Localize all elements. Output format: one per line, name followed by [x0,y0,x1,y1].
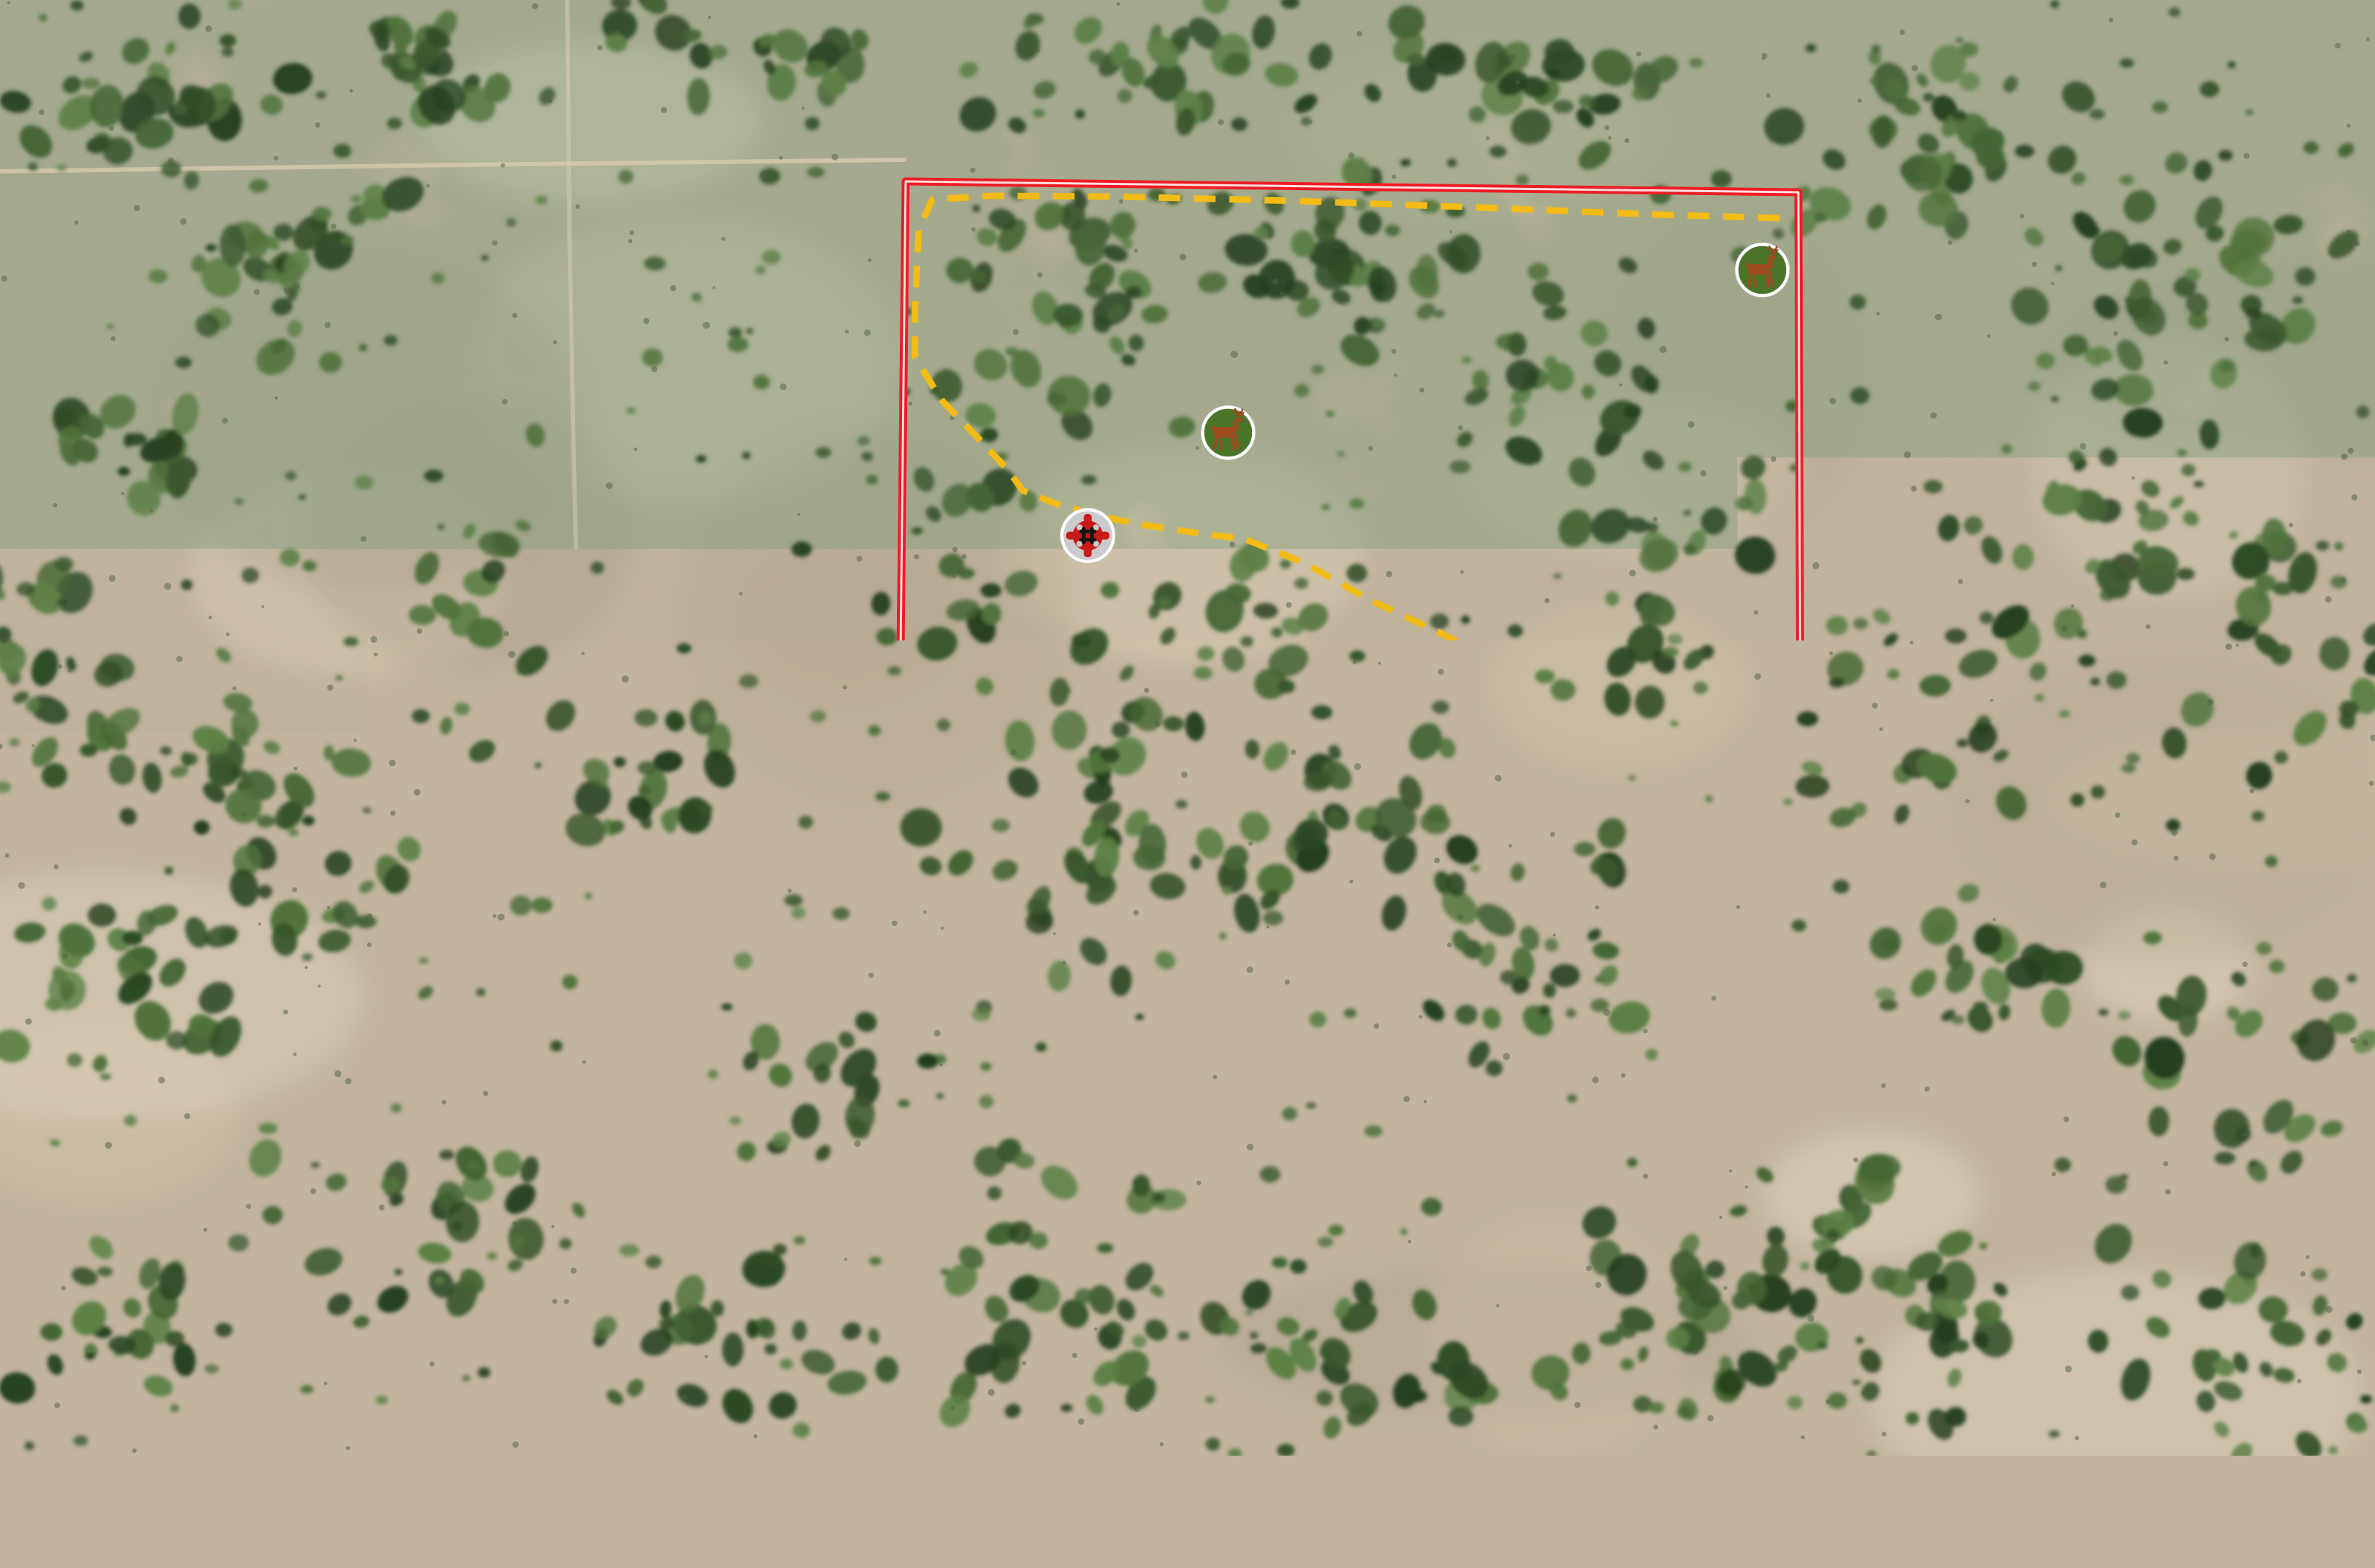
scale-label-600: 600 [2136,1374,2199,1413]
legend: Feeder Blind Road / Trail Boundary [0,1456,2375,1568]
feeder-marker-1[interactable] [1735,243,1790,297]
blind-marker-1[interactable] [1060,508,1116,564]
scale-label-800ft: 800ft [2271,1374,2358,1413]
legend-label-blind: Blind [244,1493,289,1514]
scale-segment [2019,1419,2166,1428]
legend-label-boundary: Boundary [580,1493,667,1514]
building [2150,958,2168,969]
boundary-icon [528,1485,562,1520]
map-overlay-svg [0,0,2375,1456]
scale-label-200: 200 [1840,1374,1903,1413]
grain [0,0,2375,1456]
scale-bar-strip [1723,1416,2315,1431]
scale-segment [2166,1419,2313,1428]
scale-segment [1726,1419,1873,1428]
legend-label-trail: Road / Trail [413,1493,513,1514]
scale-segment [1873,1419,2020,1428]
blind-icon [179,1477,230,1528]
scale-bar: 0 200 400 600 800ft [1690,1366,2375,1456]
road-trail-icon [354,1485,402,1520]
scale-label-400: 400 [1988,1374,2051,1413]
legend-label-feeder: Feeder [74,1493,135,1514]
satellite-map[interactable]: 0 200 400 600 800ft [0,0,2375,1456]
feeder-marker-2[interactable] [1201,405,1256,460]
property-map-app: 0 200 400 600 800ft Feeder Blind Road / … [0,0,2375,1568]
feeder-icon [10,1477,62,1528]
building [1888,1183,1903,1193]
scale-label-0: 0 [1713,1374,1734,1413]
